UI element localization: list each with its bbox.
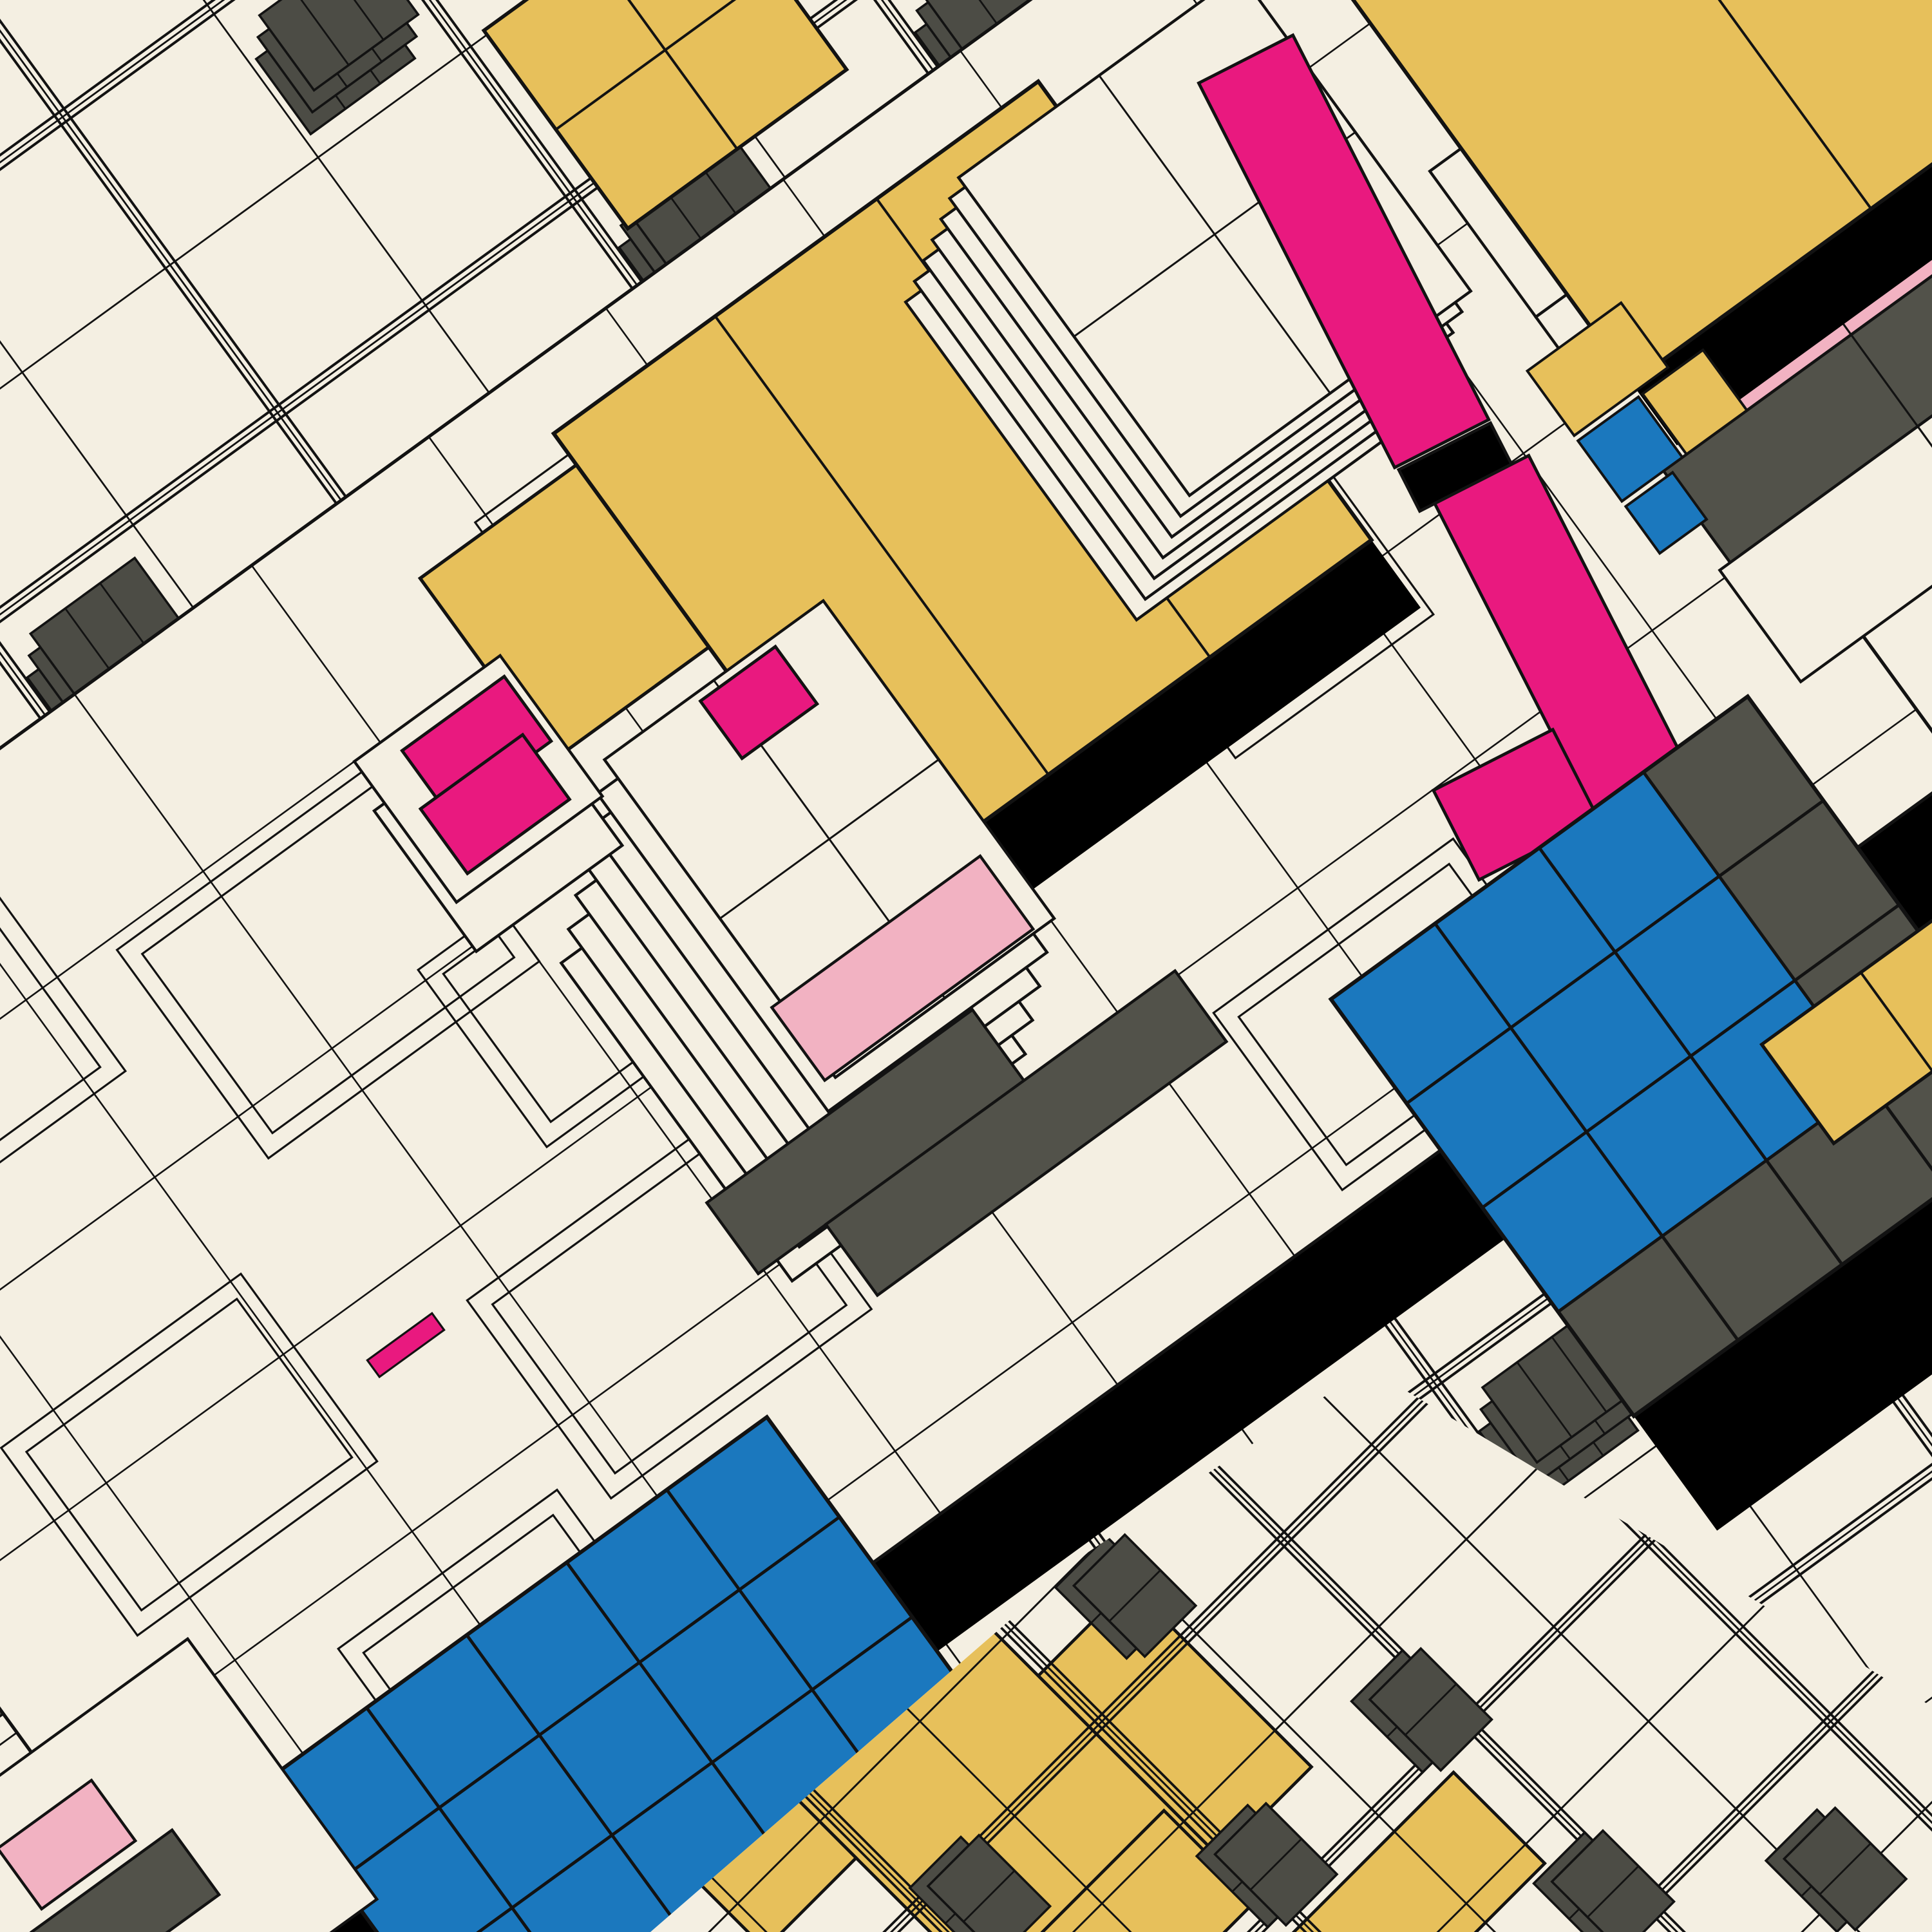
artwork-container bbox=[0, 0, 1932, 1932]
generative-isometric-artwork bbox=[0, 0, 1932, 1932]
